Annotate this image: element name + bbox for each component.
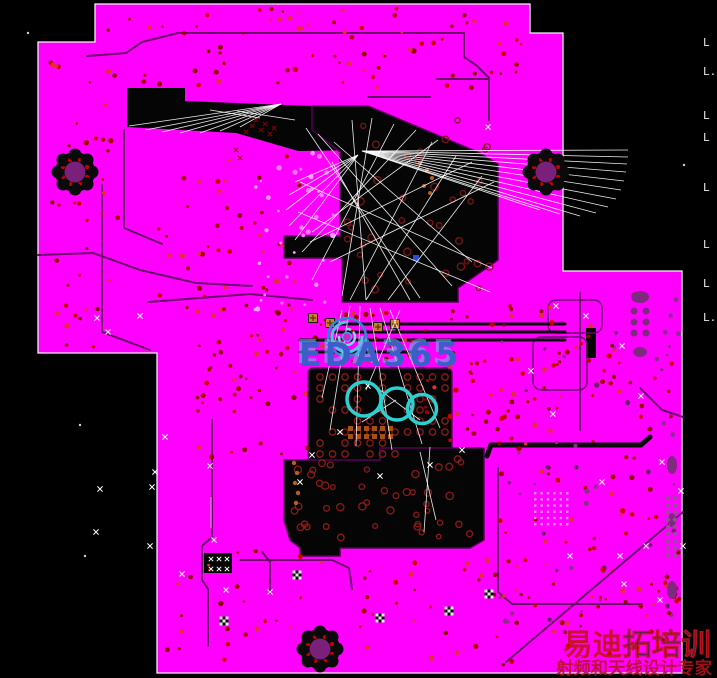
mounting-hole (523, 149, 570, 196)
layer-label: L (703, 109, 710, 122)
mounting-hole (297, 626, 344, 673)
layer-label: L (703, 36, 710, 49)
layer-label: L (703, 131, 710, 144)
layer-label: L (703, 181, 710, 194)
eda365-watermark-text: EDA365 (299, 335, 461, 374)
corner-watermark: 易迪拓培训 射频和天线设计专家 (555, 628, 712, 678)
mounting-hole (52, 149, 99, 196)
corner-watermark-line1: 易迪拓培训 (563, 628, 711, 663)
layer-label: L (703, 238, 710, 251)
layer-label: L. (703, 65, 716, 78)
layer-label: L. (703, 311, 716, 324)
pcb-canvas[interactable]: EDA365 EDA365 L L. L L L L L L. 易迪拓培训 射频… (0, 0, 717, 678)
component-region (284, 448, 484, 556)
pcb-viewer: EDA365 EDA365 L L. L L L L L L. 易迪拓培训 射频… (0, 0, 717, 678)
corner-watermark-line2: 射频和天线设计专家 (555, 658, 712, 678)
layer-label: L (703, 277, 710, 290)
